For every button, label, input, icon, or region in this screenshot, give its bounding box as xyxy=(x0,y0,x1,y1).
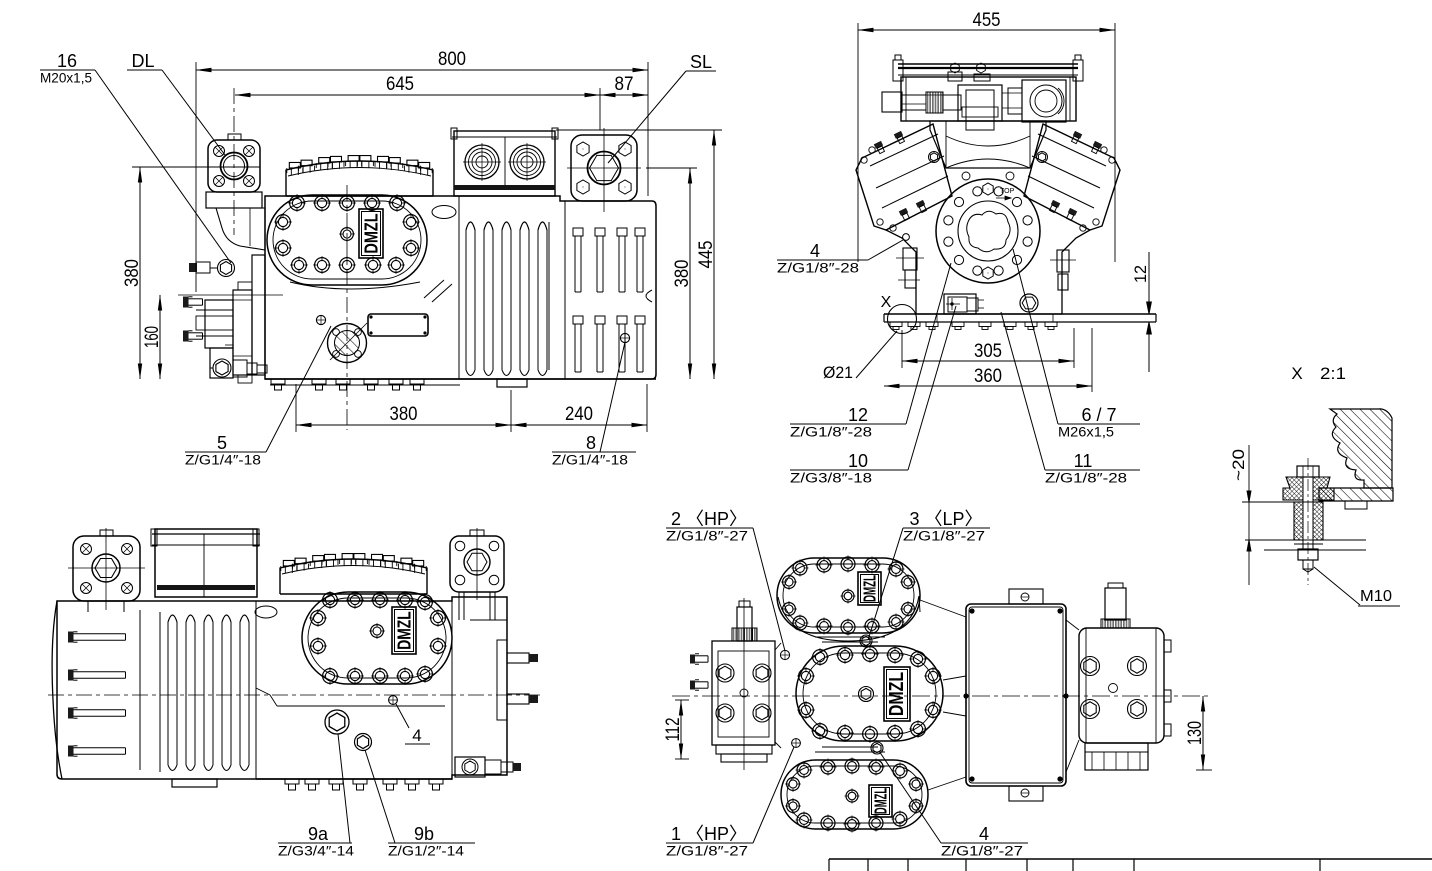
svg-text:SL: SL xyxy=(690,52,712,72)
svg-text:Z/G1/8″-27: Z/G1/8″-27 xyxy=(666,844,748,859)
svg-text:M10: M10 xyxy=(1360,588,1392,605)
svg-text:M26x1,5: M26x1,5 xyxy=(1058,425,1114,440)
svg-text:4: 4 xyxy=(810,241,820,261)
svg-text:130: 130 xyxy=(1185,721,1206,745)
svg-text:455: 455 xyxy=(973,10,1001,31)
svg-text:X: X xyxy=(881,294,892,311)
svg-text:9b: 9b xyxy=(414,824,434,844)
svg-text:DL: DL xyxy=(131,51,154,71)
svg-text:12: 12 xyxy=(1131,265,1150,283)
svg-text:DMZL: DMZL xyxy=(860,575,880,602)
svg-text:87: 87 xyxy=(615,74,634,95)
svg-text:Z/G3/8″-18: Z/G3/8″-18 xyxy=(790,471,872,486)
svg-text:5: 5 xyxy=(217,433,227,453)
svg-text:X: X xyxy=(1291,364,1302,383)
svg-text:800: 800 xyxy=(438,49,466,70)
svg-text:Z/G1/4″-18: Z/G1/4″-18 xyxy=(552,453,628,468)
svg-text:6 / 7: 6 / 7 xyxy=(1081,405,1116,425)
svg-text:645: 645 xyxy=(386,74,414,95)
svg-text:Z/G3/4″-14: Z/G3/4″-14 xyxy=(278,844,355,859)
svg-text:9a: 9a xyxy=(308,824,329,844)
svg-text:112: 112 xyxy=(663,718,684,742)
svg-text:Z/G1/8″-28: Z/G1/8″-28 xyxy=(777,261,859,276)
svg-text:380: 380 xyxy=(390,404,418,425)
svg-text:8: 8 xyxy=(586,433,596,453)
svg-text:1 〈HP〉: 1 〈HP〉 xyxy=(671,824,747,844)
svg-text:~20: ~20 xyxy=(1229,449,1248,481)
svg-text:Z/G1/2″-14: Z/G1/2″-14 xyxy=(388,844,465,859)
svg-text:Z/G1/8″-27: Z/G1/8″-27 xyxy=(666,529,748,544)
svg-text:10: 10 xyxy=(848,451,868,471)
svg-text:DMZL: DMZL xyxy=(394,611,415,650)
svg-text:Z/G1/8″-28: Z/G1/8″-28 xyxy=(790,425,872,440)
svg-text:2:1: 2:1 xyxy=(1320,364,1346,383)
svg-text:3 〈LP〉: 3 〈LP〉 xyxy=(909,509,982,529)
svg-text:445: 445 xyxy=(696,241,717,269)
svg-text:380: 380 xyxy=(672,260,693,288)
svg-text:2 〈HP〉: 2 〈HP〉 xyxy=(671,509,747,529)
svg-text:DMZL: DMZL xyxy=(871,788,891,814)
svg-text:Z/G1/8″-27: Z/G1/8″-27 xyxy=(941,844,1023,859)
svg-text:Z/G1/4″-18: Z/G1/4″-18 xyxy=(185,453,261,468)
svg-text:4: 4 xyxy=(979,824,989,844)
svg-text:360: 360 xyxy=(974,366,1002,387)
svg-text:Z/G1/8″-27: Z/G1/8″-27 xyxy=(903,529,985,544)
svg-text:4: 4 xyxy=(412,726,421,745)
svg-text:DMZL: DMZL xyxy=(361,213,382,253)
svg-text:TOP: TOP xyxy=(1000,188,1015,195)
svg-text:305: 305 xyxy=(974,341,1002,362)
svg-text:240: 240 xyxy=(565,404,593,425)
svg-text:380: 380 xyxy=(122,259,143,287)
svg-text:16: 16 xyxy=(57,51,77,71)
svg-text:160: 160 xyxy=(142,326,163,348)
svg-text:Ø21: Ø21 xyxy=(823,363,853,382)
svg-text:DMZL: DMZL xyxy=(886,672,908,716)
svg-text:M20x1,5: M20x1,5 xyxy=(40,71,92,86)
svg-text:12: 12 xyxy=(848,405,868,425)
svg-text:Z/G1/8″-28: Z/G1/8″-28 xyxy=(1045,471,1127,486)
svg-text:11: 11 xyxy=(1074,451,1093,471)
